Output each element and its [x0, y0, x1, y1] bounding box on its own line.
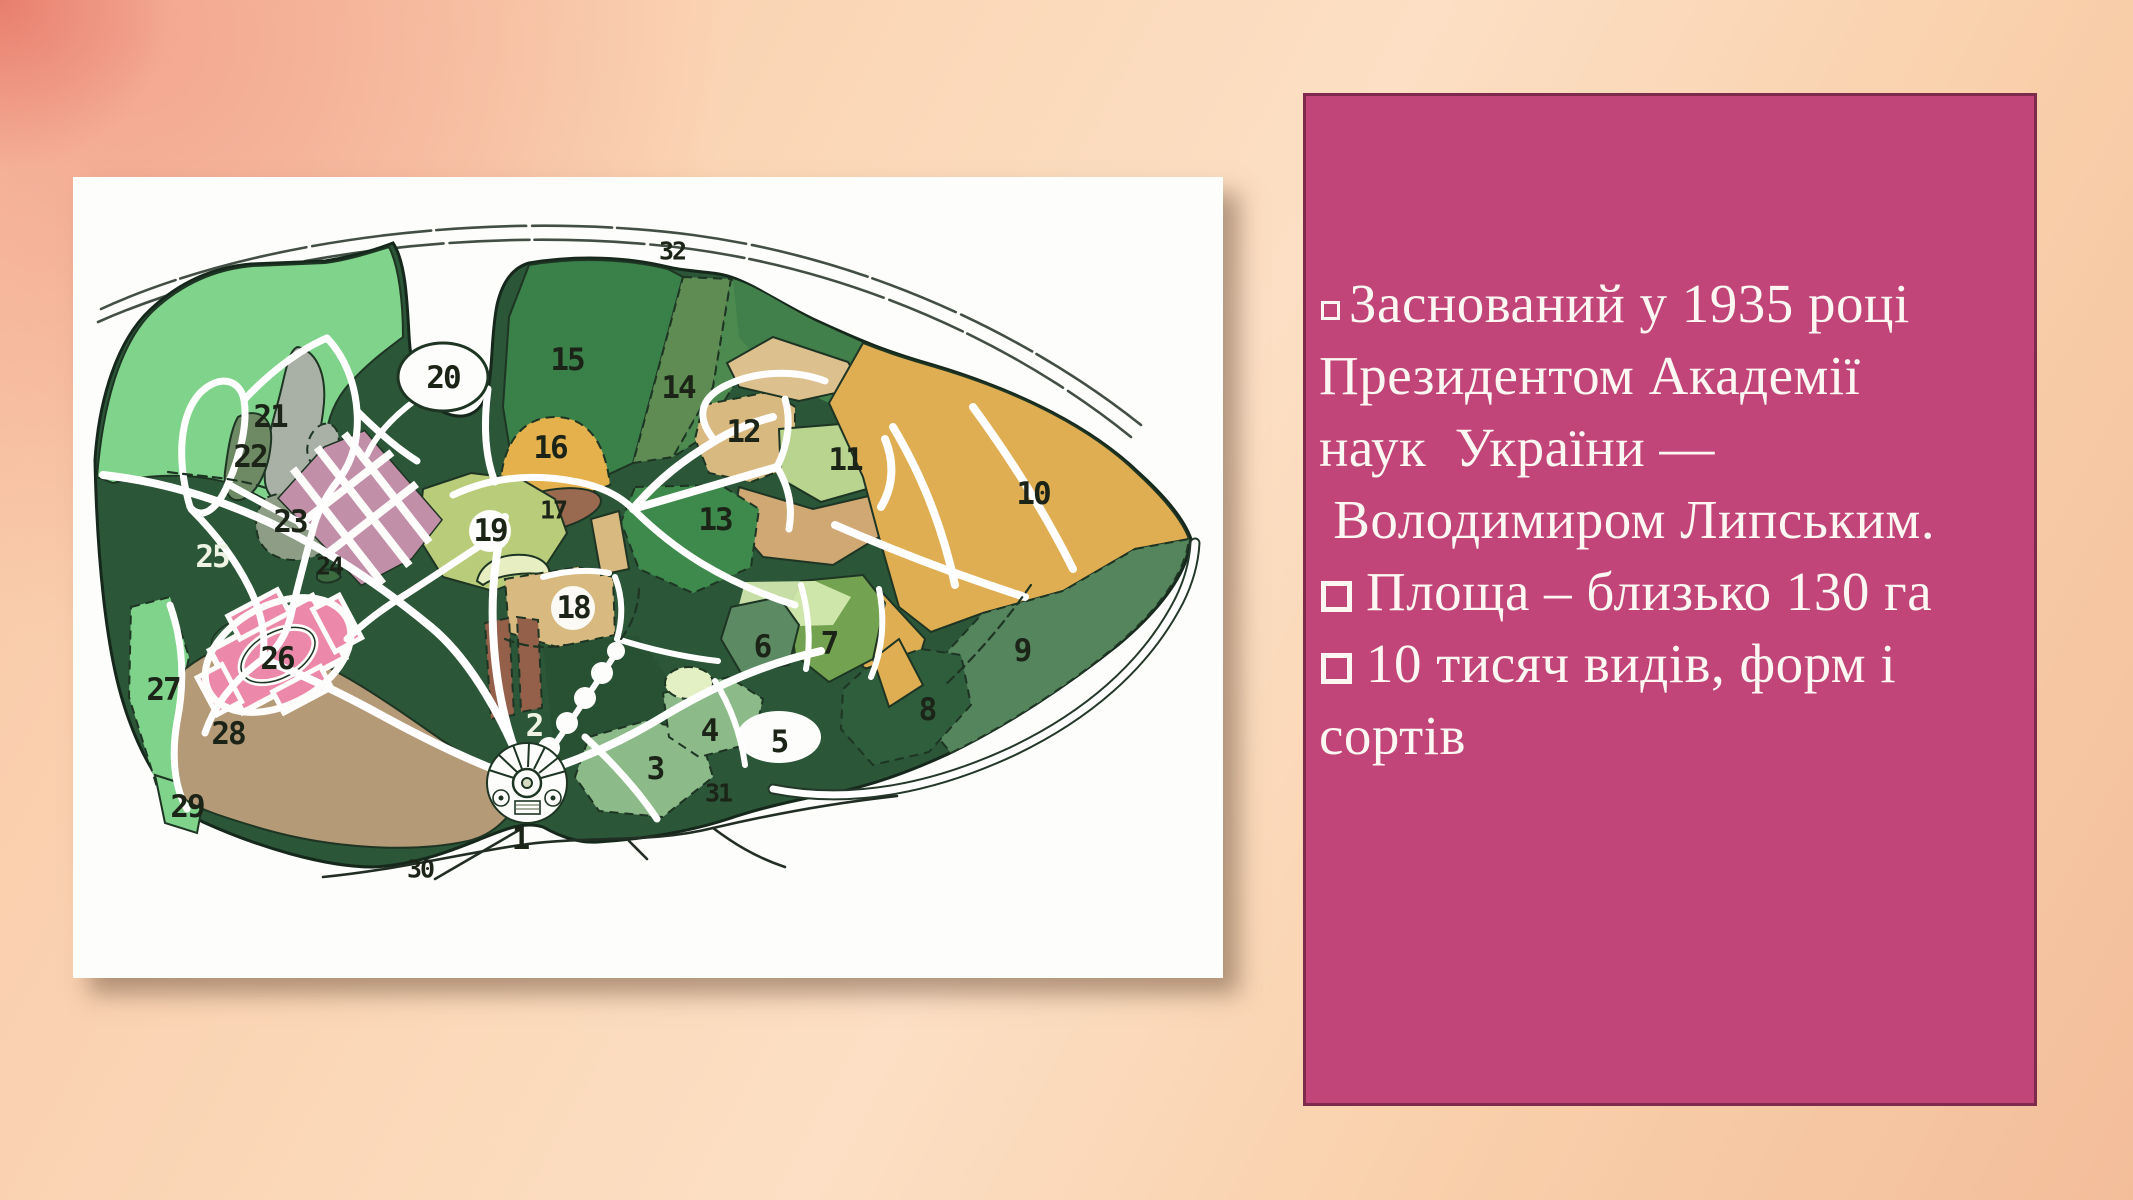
line-text: Заснований у 1935 році: [1349, 273, 1910, 334]
text-line: сортів: [1319, 700, 2016, 772]
text-line: Президентом Академії: [1319, 340, 2016, 412]
zone-label-29: 29: [170, 789, 204, 825]
zone-label-8: 8: [919, 692, 936, 728]
line-text: 10 тисяч видів, форм і: [1366, 633, 1896, 694]
zone-label-6: 6: [754, 629, 771, 665]
zone-label-12: 12: [726, 414, 760, 450]
zone-label-25: 25: [195, 539, 229, 575]
line-text: Президентом Академії: [1319, 345, 1860, 406]
zone-label-20: 20: [426, 360, 460, 396]
zone-label-1: 1: [512, 821, 530, 857]
line-text: сортів: [1319, 705, 1466, 766]
checkbox-bullet-icon: [1321, 301, 1340, 320]
zone-label-21: 21: [253, 399, 288, 435]
zone-label-7: 7: [821, 626, 838, 662]
zone-label-14: 14: [661, 370, 696, 406]
zone-label-2: 2: [526, 708, 543, 744]
zone-label-11: 11: [828, 442, 863, 478]
zone-label-3: 3: [647, 751, 664, 787]
zone-label-22: 22: [233, 439, 267, 475]
checkbox-bullet-icon: [1321, 653, 1352, 684]
central-plaza: [487, 743, 567, 823]
zone-label-10: 10: [1016, 476, 1050, 512]
zone-label-31: 31: [705, 779, 732, 808]
zone-label-5: 5: [771, 724, 788, 760]
zone-label-19: 19: [473, 513, 507, 549]
text-line: 10 тисяч видів, форм і: [1319, 628, 2016, 700]
zone-label-27: 27: [146, 672, 180, 708]
map-card: 1234567891011121314151617181920212223242…: [73, 177, 1223, 978]
garden-map: 1234567891011121314151617181920212223242…: [73, 177, 1223, 978]
line-text: Площа – близько 130 га: [1366, 561, 1932, 622]
zone-label-13: 13: [698, 502, 732, 538]
zone-label-18: 18: [556, 590, 590, 626]
zone-label-26: 26: [260, 641, 294, 677]
zone-label-32: 32: [659, 237, 685, 266]
text-line: наук України —: [1319, 412, 2016, 484]
zone-label-15: 15: [550, 342, 584, 378]
checkbox-bullet-icon: [1321, 581, 1352, 612]
zone-label-9: 9: [1014, 633, 1031, 669]
zone-label-24: 24: [316, 552, 343, 581]
line-text: наук України —: [1319, 417, 1715, 478]
zone-label-23: 23: [273, 504, 307, 540]
zone-label-30: 30: [407, 855, 434, 884]
zone-label-16: 16: [533, 430, 567, 466]
text-line: Володимиром Липським.: [1319, 484, 2016, 556]
presentation-slide: 1234567891011121314151617181920212223242…: [0, 0, 2133, 1200]
zone-label-28: 28: [211, 716, 245, 752]
text-line: Заснований у 1935 році: [1319, 268, 2016, 340]
line-text: Володимиром Липським.: [1319, 489, 1935, 550]
zone-label-4: 4: [701, 713, 719, 749]
info-panel: Заснований у 1935 році Президентом Акаде…: [1303, 93, 2037, 1106]
text-line: Площа – близько 130 га: [1319, 556, 2016, 628]
zone-label-17: 17: [540, 496, 567, 525]
